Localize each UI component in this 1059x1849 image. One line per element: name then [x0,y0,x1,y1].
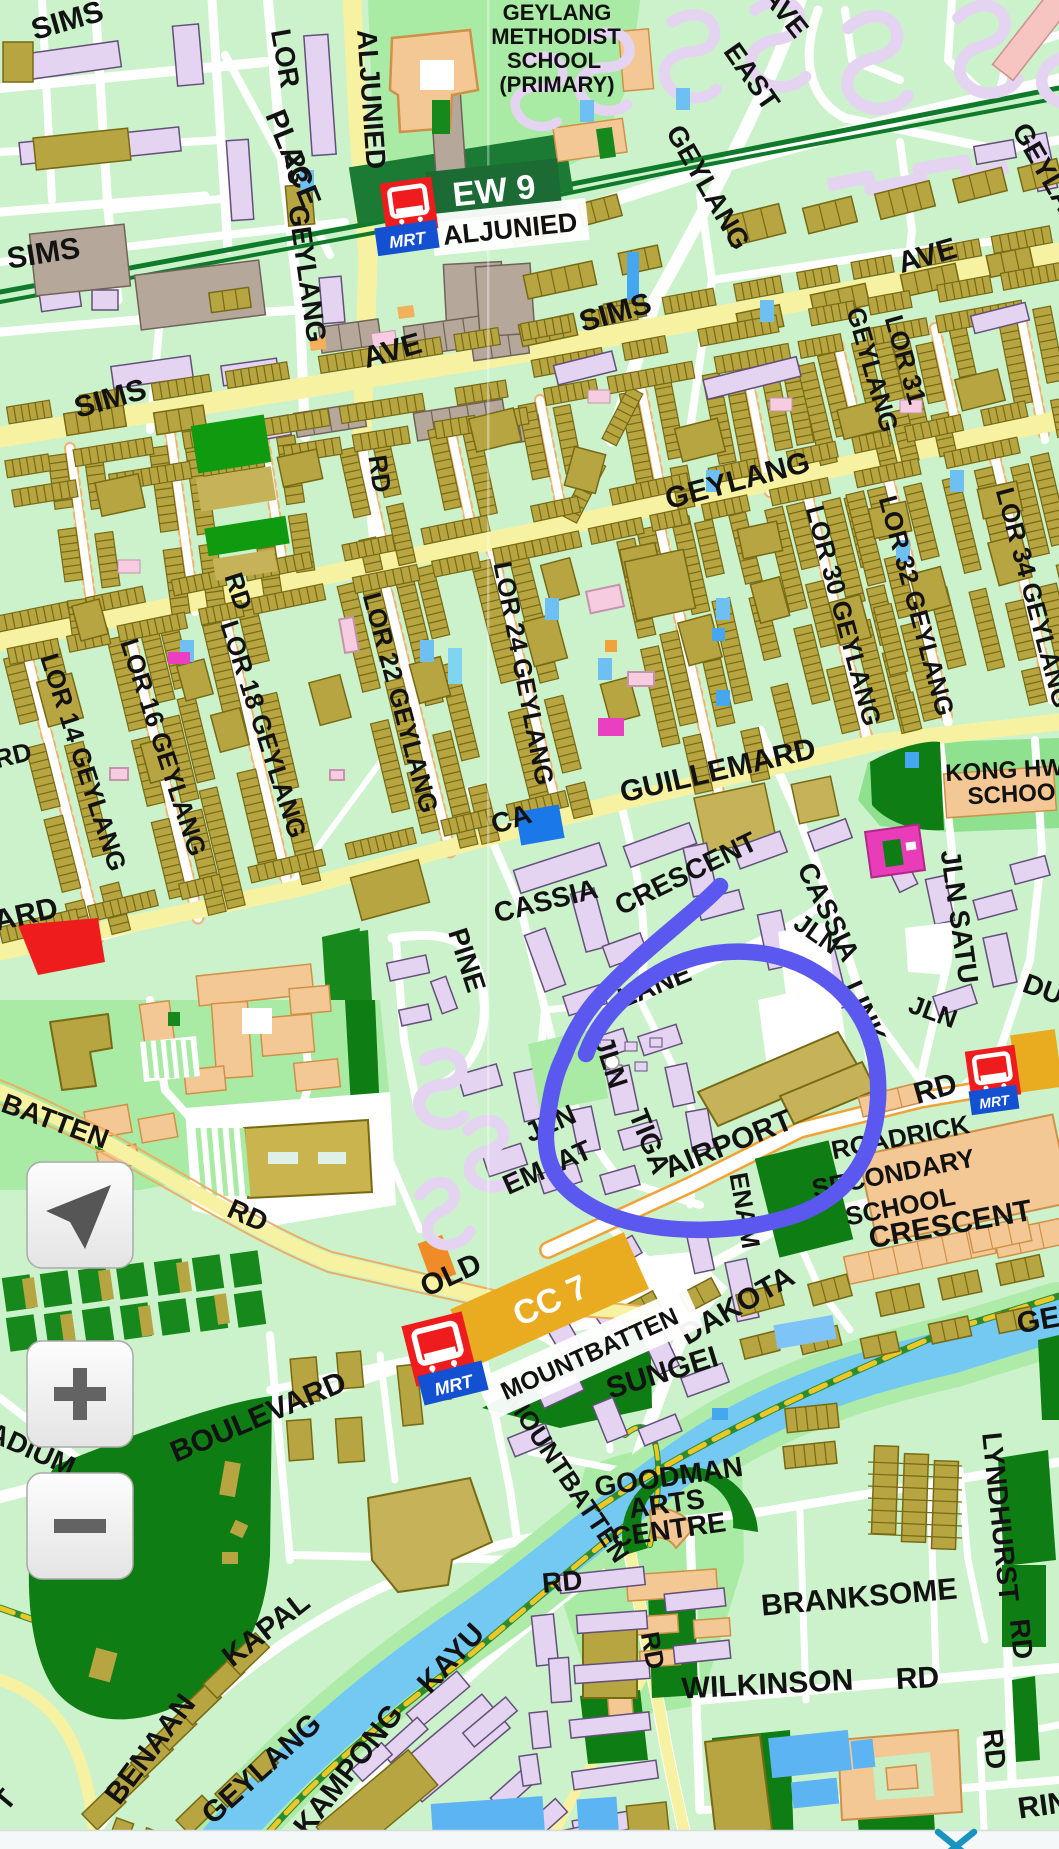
svg-text:RIN: RIN [1016,1786,1059,1826]
svg-text:SCHOOL: SCHOOL [507,48,601,73]
svg-text:RD: RD [541,1564,584,1598]
svg-text:RD: RD [977,1727,1012,1770]
svg-text:RD: RD [635,1629,671,1671]
svg-text:(PRIMARY): (PRIMARY) [499,72,614,97]
svg-text:RD: RD [362,453,397,494]
svg-text:RD: RD [895,1661,940,1696]
svg-text:RD: RD [1004,1617,1039,1660]
svg-text:23: 23 [278,150,314,186]
svg-text:METHODIST: METHODIST [491,24,621,49]
svg-text:SCHOO: SCHOO [967,779,1056,811]
svg-text:GEYLANG: GEYLANG [503,0,612,25]
